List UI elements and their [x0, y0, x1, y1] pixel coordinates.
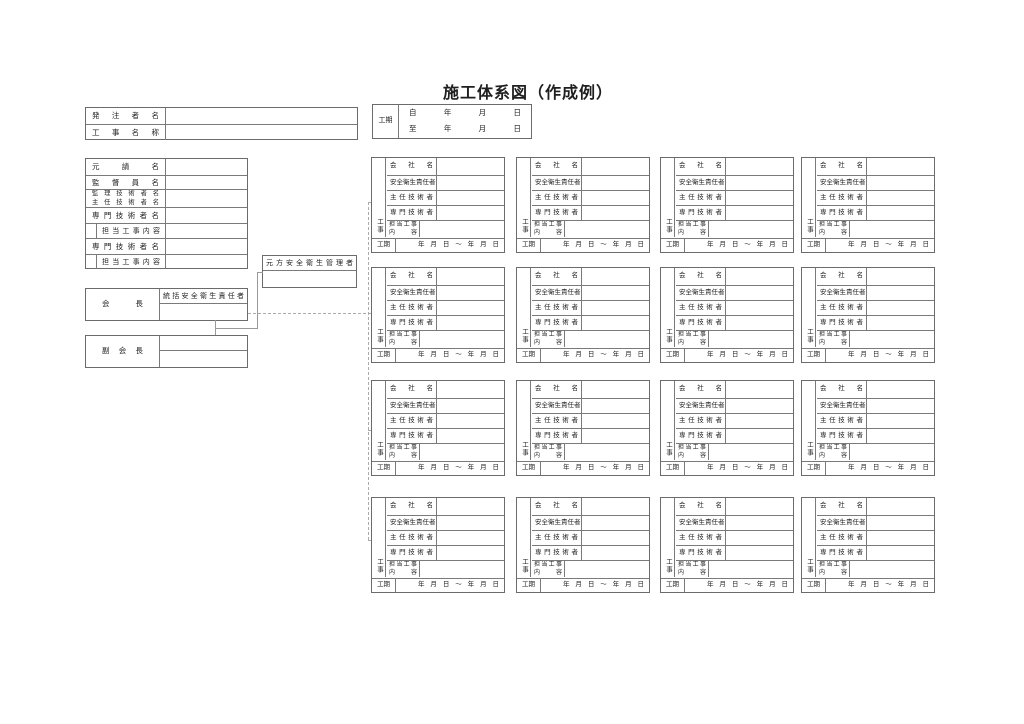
chief-engineer-row: 主任技術者 — [387, 530, 504, 545]
subcontractor-box: 工事会社名安全衛生責任者主任技術者専門技術者担当工事内容工期年 月 日 ～ 年 … — [660, 157, 794, 253]
safety-health-officer-row: 安全衛生責任者 — [676, 175, 793, 190]
company-name-value — [867, 498, 934, 515]
specialist-engineer-label: 専門技術者 — [817, 546, 867, 560]
specialist-engineer-label: 専門技術者 — [676, 206, 726, 220]
subcontractor-rows: 会社名安全衛生責任者主任技術者専門技術者担当工事内容 — [676, 158, 793, 237]
supervisor-value — [166, 176, 247, 189]
chief-engineer-row: 監理技術者名 主任技術者名 — [86, 189, 247, 207]
safety-health-officer-row: 安全衛生責任者 — [532, 515, 649, 530]
subcontractor-rows: 会社名安全衛生責任者主任技術者専門技術者担当工事内容 — [532, 158, 649, 237]
company-name-label: 会社名 — [532, 158, 582, 175]
period-value: 年 月 日 ～ 年 月 日 — [826, 239, 934, 252]
work-content-row: 担当工事内容 — [387, 560, 504, 577]
work-content-value — [420, 444, 504, 460]
specialist-engineer-row: 専門技術者 — [676, 428, 793, 443]
specialist-engineer-row-1: 専門技術者名 — [86, 207, 247, 223]
period-label: 工期 — [802, 349, 826, 362]
safety-health-officer-label: 安全衛生責任者 — [387, 286, 437, 300]
chief-engineer-label: 主任技術者 — [817, 191, 867, 205]
company-name-label: 会社名 — [676, 268, 726, 285]
work-content-label: 担当工事内容 — [387, 444, 420, 460]
safety-health-officer-value — [582, 286, 649, 300]
period-row: 工期年 月 日 ～ 年 月 日 — [517, 238, 649, 252]
safety-health-officer-value — [726, 516, 793, 530]
company-name-row: 会社名 — [387, 381, 504, 398]
specialist-engineer-label: 専門技術者 — [676, 429, 726, 443]
subcontractor-rows: 会社名安全衛生責任者主任技術者専門技術者担当工事内容 — [387, 381, 504, 460]
specialist-engineer-value — [437, 206, 504, 220]
specialist-engineer-value — [867, 546, 934, 560]
subcontractor-rows: 会社名安全衛生責任者主任技術者専門技術者担当工事内容 — [817, 498, 934, 577]
chief-engineer-row: 主任技術者 — [817, 300, 934, 315]
safety-health-officer-label: 安全衛生責任者 — [817, 176, 867, 190]
chairman-label: 会長 — [86, 289, 160, 320]
specialist-engineer-label: 専門技術者 — [532, 546, 582, 560]
safety-health-officer-row: 安全衛生責任者 — [817, 285, 934, 300]
specialist-engineer-row: 専門技術者 — [676, 545, 793, 560]
supervisor-row: 監督員名 — [86, 175, 247, 189]
construction-column-cell: 工事 — [372, 268, 386, 347]
safety-health-officer-row: 安全衛生責任者 — [817, 515, 934, 530]
work-content-value — [420, 221, 504, 237]
project-name-row: 工事名称 — [86, 124, 357, 140]
period-row: 工期年 月 日 ～ 年 月 日 — [661, 348, 793, 362]
subcontractor-box: 工事会社名安全衛生責任者主任技術者専門技術者担当工事内容工期年 月 日 ～ 年 … — [516, 157, 650, 253]
specialist-engineer-value — [726, 429, 793, 443]
work-content-row: 担当工事内容 — [387, 443, 504, 460]
chief-engineer-label: 主任技術者 — [676, 414, 726, 428]
work-content-row: 担当工事内容 — [676, 330, 793, 347]
specialist-engineer-value — [582, 316, 649, 330]
subcontractor-box: 工事会社名安全衛生責任者主任技術者専門技術者担当工事内容工期年 月 日 ～ 年 … — [660, 380, 794, 476]
work-content-row: 担当工事内容 — [676, 443, 793, 460]
company-name-row: 会社名 — [676, 381, 793, 398]
construction-vertical-label: 工事 — [519, 558, 529, 577]
prime-name-value — [166, 159, 247, 175]
work-content-row: 担当工事内容 — [676, 220, 793, 237]
work-content-label: 担当工事内容 — [532, 331, 565, 347]
vice-chairman-value-bottom — [160, 351, 247, 367]
period-to-line: 至 年 月 日 — [409, 121, 521, 137]
work-content-label: 担当工事内容 — [817, 221, 850, 237]
work-content-row-1: 担当工事内容 — [86, 223, 247, 238]
period-label: 工期 — [661, 349, 685, 362]
subcontractor-box: 工事会社名安全衛生責任者主任技術者専門技術者担当工事内容工期年 月 日 ～ 年 … — [516, 267, 650, 363]
chief-engineer-value — [726, 414, 793, 428]
period-row: 工期年 月 日 ～ 年 月 日 — [372, 578, 504, 592]
company-name-row: 会社名 — [817, 268, 934, 285]
work-content-label-2: 担当工事内容 — [96, 255, 166, 269]
construction-column-cell: 工事 — [661, 158, 675, 237]
specialist-engineer-row: 専門技術者 — [676, 205, 793, 220]
period-value: 年 月 日 ～ 年 月 日 — [541, 239, 649, 252]
company-name-value — [582, 498, 649, 515]
construction-system-diagram-sheet: 施工体系図（作成例） 発注者名 工事名称 工期 自 年 月 日 至 年 月 日 … — [0, 0, 1024, 724]
company-name-row: 会社名 — [817, 158, 934, 175]
chief-engineer-label: 主任技術者 — [387, 301, 437, 315]
chief-engineer-value — [867, 191, 934, 205]
company-name-label: 会社名 — [676, 381, 726, 398]
chief-engineer-row: 主任技術者 — [387, 413, 504, 428]
safety-health-officer-row: 安全衛生責任者 — [387, 175, 504, 190]
specialist-engineer-row-2: 専門技術者名 — [86, 238, 247, 254]
specialist-engineer-label: 専門技術者 — [532, 429, 582, 443]
specialist-engineer-row: 専門技術者 — [676, 315, 793, 330]
subcontractor-rows: 会社名安全衛生責任者主任技術者専門技術者担当工事内容 — [532, 498, 649, 577]
construction-column-cell: 工事 — [661, 268, 675, 347]
safety-health-officer-row: 安全衛生責任者 — [532, 398, 649, 413]
company-name-label: 会社名 — [817, 381, 867, 398]
chief-engineer-label: 主任技術者 — [387, 531, 437, 545]
company-name-row: 会社名 — [387, 268, 504, 285]
chief-engineer-value — [437, 531, 504, 545]
chief-engineer-label: 主任技術者 — [817, 301, 867, 315]
period-value: 年 月 日 ～ 年 月 日 — [685, 579, 793, 592]
construction-column-cell: 工事 — [661, 381, 675, 460]
work-content-row: 担当工事内容 — [532, 443, 649, 460]
specialist-engineer-value — [437, 316, 504, 330]
specialist-engineer-row: 専門技術者 — [817, 205, 934, 220]
construction-column-cell: 工事 — [517, 268, 531, 347]
subcontractor-box: 工事会社名安全衛生責任者主任技術者専門技術者担当工事内容工期年 月 日 ～ 年 … — [801, 380, 935, 476]
specialist-engineer-row: 専門技術者 — [387, 205, 504, 220]
safety-health-officer-value — [437, 516, 504, 530]
safety-health-officer-label: 安全衛生責任者 — [532, 399, 582, 413]
company-name-value — [726, 381, 793, 398]
safety-health-officer-value — [867, 286, 934, 300]
chief-engineer-value — [582, 531, 649, 545]
work-content-value — [709, 561, 793, 577]
period-value: 年 月 日 ～ 年 月 日 — [685, 462, 793, 475]
chief-engineer-row: 主任技術者 — [676, 530, 793, 545]
company-name-label: 会社名 — [387, 268, 437, 285]
company-name-label: 会社名 — [676, 498, 726, 515]
work-content-row: 担当工事内容 — [532, 560, 649, 577]
company-name-row: 会社名 — [676, 268, 793, 285]
specialist-engineer-label: 専門技術者 — [387, 546, 437, 560]
period-label: 工期 — [517, 239, 541, 252]
period-row: 工期年 月 日 ～ 年 月 日 — [661, 578, 793, 592]
safety-health-officer-row: 安全衛生責任者 — [532, 175, 649, 190]
chief-engineer-label: 主任技術者 — [817, 531, 867, 545]
vice-chairman-side — [160, 336, 247, 367]
chief-engineer-value — [726, 301, 793, 315]
period-value: 年 月 日 ～ 年 月 日 — [826, 579, 934, 592]
period-value: 年 月 日 ～ 年 月 日 — [396, 239, 504, 252]
safety-health-officer-row: 安全衛生責任者 — [387, 398, 504, 413]
subcontractor-rows: 会社名安全衛生責任者主任技術者専門技術者担当工事内容 — [817, 381, 934, 460]
indent-spacer — [86, 255, 96, 269]
construction-column-cell: 工事 — [372, 498, 386, 577]
subcontractor-rows: 会社名安全衛生責任者主任技術者専門技術者担当工事内容 — [676, 268, 793, 347]
period-label: 工期 — [661, 579, 685, 592]
work-content-row: 担当工事内容 — [817, 560, 934, 577]
work-content-row: 担当工事内容 — [387, 330, 504, 347]
work-content-label: 担当工事内容 — [387, 221, 420, 237]
safety-health-officer-value — [582, 176, 649, 190]
safety-health-officer-value — [867, 516, 934, 530]
chief-engineer-value — [726, 531, 793, 545]
safety-health-officer-label: 安全衛生責任者 — [676, 286, 726, 300]
chief-engineer-row: 主任技術者 — [532, 190, 649, 205]
period-label: 工期 — [372, 579, 396, 592]
chief-engineer-label: 主任技術者 — [817, 414, 867, 428]
subcontractor-box: 工事会社名安全衛生責任者主任技術者専門技術者担当工事内容工期年 月 日 ～ 年 … — [801, 157, 935, 253]
company-name-value — [582, 381, 649, 398]
safety-health-officer-value — [867, 176, 934, 190]
lead-engineer-label: 主任技術者名 — [92, 199, 159, 207]
construction-vertical-label: 工事 — [374, 441, 384, 460]
company-name-row: 会社名 — [532, 158, 649, 175]
work-content-label: 担当工事内容 — [387, 331, 420, 347]
chief-engineer-row: 主任技術者 — [676, 190, 793, 205]
construction-vertical-label: 工事 — [663, 328, 673, 347]
work-content-label: 担当工事内容 — [817, 561, 850, 577]
period-value: 年 月 日 ～ 年 月 日 — [396, 579, 504, 592]
chief-engineer-value — [867, 531, 934, 545]
specialist-engineer-label: 専門技術者 — [676, 546, 726, 560]
subcontractor-rows: 会社名安全衛生責任者主任技術者専門技術者担当工事内容 — [676, 498, 793, 577]
subcontractor-rows: 会社名安全衛生責任者主任技術者専門技術者担当工事内容 — [676, 381, 793, 460]
work-content-value — [565, 221, 649, 237]
specialist-engineer-label: 専門技術者 — [817, 316, 867, 330]
construction-vertical-label: 工事 — [663, 558, 673, 577]
chief-engineer-row: 主任技術者 — [532, 413, 649, 428]
company-name-value — [726, 158, 793, 175]
period-value: 年 月 日 ～ 年 月 日 — [826, 349, 934, 362]
work-content-label: 担当工事内容 — [676, 331, 709, 347]
principal-safety-manager-label: 元方安全衛生管理者 — [263, 256, 356, 271]
chief-engineer-label: 主任技術者 — [676, 531, 726, 545]
safety-health-officer-label: 安全衛生責任者 — [676, 399, 726, 413]
safety-health-officer-label: 安全衛生責任者 — [532, 176, 582, 190]
company-name-label: 会社名 — [532, 268, 582, 285]
work-content-value — [709, 221, 793, 237]
safety-health-officer-value — [726, 286, 793, 300]
construction-vertical-label: 工事 — [519, 441, 529, 460]
project-name-label: 工事名称 — [86, 125, 166, 140]
period-label: 工期 — [661, 462, 685, 475]
construction-vertical-label: 工事 — [519, 218, 529, 237]
subcontractor-box: 工事会社名安全衛生責任者主任技術者専門技術者担当工事内容工期年 月 日 ～ 年 … — [801, 267, 935, 363]
overall-period-label: 工期 — [373, 105, 399, 138]
owner-name-value — [166, 108, 357, 124]
company-name-row: 会社名 — [676, 498, 793, 515]
safety-health-officer-value — [437, 286, 504, 300]
subcontractor-rows: 会社名安全衛生責任者主任技術者専門技術者担当工事内容 — [387, 268, 504, 347]
principal-safety-manager-box: 元方安全衛生管理者 — [262, 255, 357, 288]
specialist-engineer-row: 専門技術者 — [532, 205, 649, 220]
safety-health-officer-label: 安全衛生責任者 — [532, 516, 582, 530]
work-content-value — [565, 331, 649, 347]
general-safety-officer-label: 統括安全衛生責任者 — [160, 289, 247, 304]
specialist-engineer-value — [726, 546, 793, 560]
specialist-engineer-value-1 — [166, 208, 247, 223]
company-name-value — [867, 268, 934, 285]
construction-column-cell: 工事 — [802, 158, 816, 237]
construction-vertical-label: 工事 — [663, 441, 673, 460]
safety-health-officer-label: 安全衛生責任者 — [817, 399, 867, 413]
construction-column-cell: 工事 — [372, 158, 386, 237]
company-name-label: 会社名 — [387, 498, 437, 515]
construction-vertical-label: 工事 — [374, 328, 384, 347]
construction-vertical-label: 工事 — [804, 441, 814, 460]
specialist-engineer-value — [726, 316, 793, 330]
subcontractor-rows: 会社名安全衛生責任者主任技術者専門技術者担当工事内容 — [387, 158, 504, 237]
construction-column-cell: 工事 — [661, 498, 675, 577]
construction-vertical-label: 工事 — [519, 328, 529, 347]
specialist-engineer-label: 専門技術者 — [387, 206, 437, 220]
company-name-row: 会社名 — [676, 158, 793, 175]
construction-column-cell: 工事 — [802, 498, 816, 577]
subcontractor-rows: 会社名安全衛生責任者主任技術者専門技術者担当工事内容 — [817, 158, 934, 237]
work-content-row: 担当工事内容 — [532, 330, 649, 347]
construction-column-cell: 工事 — [517, 381, 531, 460]
work-content-value — [565, 561, 649, 577]
specialist-engineer-label-2: 専門技術者名 — [86, 239, 166, 254]
owner-project-table: 発注者名 工事名称 — [85, 107, 358, 140]
company-name-row: 会社名 — [387, 158, 504, 175]
period-value: 年 月 日 ～ 年 月 日 — [541, 349, 649, 362]
period-label: 工期 — [372, 349, 396, 362]
construction-vertical-label: 工事 — [804, 328, 814, 347]
specialist-engineer-label: 専門技術者 — [676, 316, 726, 330]
connector-branch-horizontal — [215, 328, 258, 329]
specialist-engineer-label: 専門技術者 — [817, 429, 867, 443]
safety-health-officer-value — [726, 399, 793, 413]
period-row: 工期年 月 日 ～ 年 月 日 — [802, 238, 934, 252]
specialist-engineer-value — [867, 206, 934, 220]
chief-engineer-label: 主任技術者 — [532, 301, 582, 315]
work-content-value-1 — [166, 224, 247, 238]
company-name-value — [726, 268, 793, 285]
period-row: 工期年 月 日 ～ 年 月 日 — [372, 348, 504, 362]
specialist-engineer-row: 専門技術者 — [387, 545, 504, 560]
chief-engineer-value — [867, 414, 934, 428]
period-row: 工期年 月 日 ～ 年 月 日 — [517, 348, 649, 362]
subcontractor-rows: 会社名安全衛生責任者主任技術者専門技術者担当工事内容 — [532, 381, 649, 460]
safety-health-officer-value — [726, 176, 793, 190]
indent-spacer — [86, 224, 96, 238]
construction-column-cell: 工事 — [372, 381, 386, 460]
period-label: 工期 — [517, 579, 541, 592]
period-label: 工期 — [517, 462, 541, 475]
chief-engineer-labels: 監理技術者名 主任技術者名 — [86, 190, 166, 207]
period-row: 工期年 月 日 ～ 年 月 日 — [372, 461, 504, 475]
project-name-value — [166, 125, 357, 140]
period-label: 工期 — [372, 462, 396, 475]
subcontractor-rows: 会社名安全衛生責任者主任技術者専門技術者担当工事内容 — [387, 498, 504, 577]
supervising-engineer-label: 監理技術者名 — [92, 190, 159, 199]
specialist-engineer-value — [867, 429, 934, 443]
specialist-engineer-value — [437, 429, 504, 443]
chief-engineer-label: 主任技術者 — [676, 301, 726, 315]
work-content-row: 担当工事内容 — [817, 443, 934, 460]
chief-engineer-value — [867, 301, 934, 315]
company-name-row: 会社名 — [817, 498, 934, 515]
chief-engineer-row: 主任技術者 — [387, 300, 504, 315]
company-name-label: 会社名 — [387, 381, 437, 398]
safety-health-officer-label: 安全衛生責任者 — [387, 176, 437, 190]
company-name-value — [437, 381, 504, 398]
specialist-engineer-label: 専門技術者 — [387, 316, 437, 330]
subcontractor-box: 工事会社名安全衛生責任者主任技術者専門技術者担当工事内容工期年 月 日 ～ 年 … — [516, 380, 650, 476]
connector-grid-main-dashed — [248, 313, 371, 314]
company-name-value — [437, 158, 504, 175]
specialist-engineer-row: 専門技術者 — [532, 545, 649, 560]
specialist-engineer-value — [582, 206, 649, 220]
company-name-value — [437, 498, 504, 515]
period-value: 年 月 日 ～ 年 月 日 — [685, 349, 793, 362]
chief-engineer-label: 主任技術者 — [387, 191, 437, 205]
subcontractor-box: 工事会社名安全衛生責任者主任技術者専門技術者担当工事内容工期年 月 日 ～ 年 … — [801, 497, 935, 593]
subcontractor-rows: 会社名安全衛生責任者主任技術者専門技術者担当工事内容 — [817, 268, 934, 347]
work-content-value — [709, 444, 793, 460]
page-title: 施工体系図（作成例） — [443, 79, 613, 103]
construction-column-cell: 工事 — [802, 381, 816, 460]
safety-health-officer-row: 安全衛生責任者 — [817, 175, 934, 190]
work-content-value — [850, 221, 934, 237]
construction-vertical-label: 工事 — [804, 218, 814, 237]
construction-column-cell: 工事 — [517, 158, 531, 237]
construction-vertical-label: 工事 — [804, 558, 814, 577]
period-label: 工期 — [517, 349, 541, 362]
company-name-row: 会社名 — [387, 498, 504, 515]
period-value: 年 月 日 ～ 年 月 日 — [826, 462, 934, 475]
period-label: 工期 — [802, 462, 826, 475]
company-name-row: 会社名 — [532, 498, 649, 515]
construction-vertical-label: 工事 — [374, 218, 384, 237]
vice-chairman-value-top — [160, 336, 247, 351]
connector-psm-stub — [257, 272, 263, 273]
safety-health-officer-row: 安全衛生責任者 — [676, 515, 793, 530]
overall-period-table: 工期 自 年 月 日 至 年 月 日 — [372, 104, 532, 139]
chief-engineer-row: 主任技術者 — [676, 300, 793, 315]
work-content-row: 担当工事内容 — [676, 560, 793, 577]
work-content-value — [420, 331, 504, 347]
company-name-label: 会社名 — [532, 498, 582, 515]
period-label: 工期 — [802, 579, 826, 592]
work-content-row: 担当工事内容 — [532, 220, 649, 237]
chief-engineer-value — [437, 414, 504, 428]
vice-chairman-box: 副会長 — [85, 335, 248, 368]
safety-health-officer-label: 安全衛生責任者 — [387, 516, 437, 530]
safety-health-officer-label: 安全衛生責任者 — [532, 286, 582, 300]
work-content-value — [850, 444, 934, 460]
specialist-engineer-label: 専門技術者 — [817, 206, 867, 220]
company-name-value — [867, 158, 934, 175]
chief-engineer-value — [582, 301, 649, 315]
period-row: 工期年 月 日 ～ 年 月 日 — [802, 578, 934, 592]
safety-health-officer-value — [437, 399, 504, 413]
owner-name-row: 発注者名 — [86, 108, 357, 124]
safety-health-officer-row: 安全衛生責任者 — [387, 285, 504, 300]
specialist-engineer-row: 専門技術者 — [817, 315, 934, 330]
safety-health-officer-value — [582, 516, 649, 530]
period-value: 年 月 日 ～ 年 月 日 — [396, 349, 504, 362]
subcontractor-box: 工事会社名安全衛生責任者主任技術者専門技術者担当工事内容工期年 月 日 ～ 年 … — [371, 157, 505, 253]
prime-contractor-table: 元請名 監督員名 監理技術者名 主任技術者名 専門技術者名 担当工事内容 専門技… — [85, 158, 248, 269]
work-content-value — [850, 331, 934, 347]
overall-period-values: 自 年 月 日 至 年 月 日 — [399, 105, 531, 138]
specialist-engineer-label: 専門技術者 — [532, 316, 582, 330]
chief-engineer-row: 主任技術者 — [532, 530, 649, 545]
work-content-label-1: 担当工事内容 — [96, 224, 166, 238]
company-name-label: 会社名 — [817, 498, 867, 515]
specialist-engineer-label: 専門技術者 — [532, 206, 582, 220]
construction-column-cell: 工事 — [802, 268, 816, 347]
specialist-engineer-row: 専門技術者 — [387, 428, 504, 443]
